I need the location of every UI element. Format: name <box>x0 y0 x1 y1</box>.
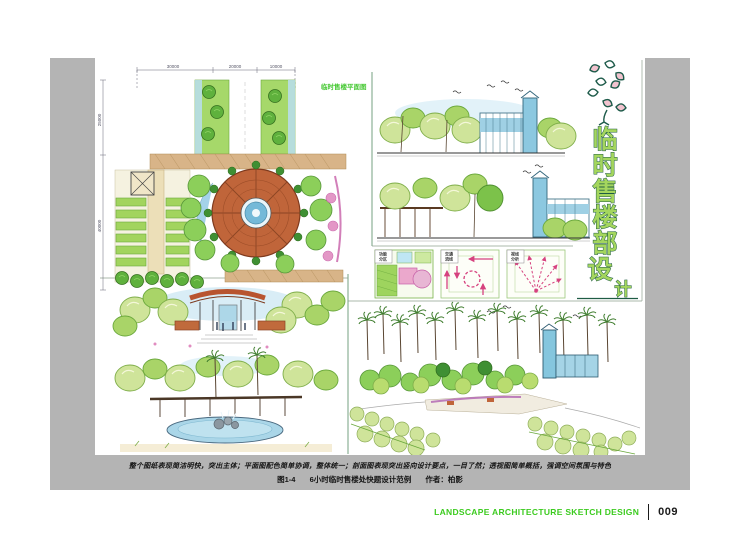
dim-top-2: 20000 <box>229 64 242 69</box>
plan-entry-drive <box>195 80 295 154</box>
elevation2-pergola <box>380 208 443 237</box>
circulation-diagram: 交通 流线 <box>441 250 499 298</box>
title-char-2: 时 <box>592 152 617 180</box>
figure-number: 图1-4 <box>277 475 295 484</box>
zoning-diagram: 功能 分区 <box>375 250 433 298</box>
title-char-7: 计 <box>615 279 632 299</box>
sightline-diagram: 视线 分析 <box>507 250 565 298</box>
page-number: 009 <box>658 506 678 518</box>
footer-divider <box>648 504 649 520</box>
figure-author: 作者：柏影 <box>425 475 463 484</box>
figure-caption: 图1-4 6小时临时售楼处快题设计范例 作者：柏影 <box>271 474 469 485</box>
entrance-perspective <box>113 287 345 349</box>
aerial-palms <box>358 302 616 362</box>
watercourt-pool <box>167 410 283 443</box>
aerial-perspective <box>350 302 640 455</box>
figure-title: 6小时临时售楼处快题设计范例 <box>310 475 412 484</box>
plan-title-label: 临时售楼平面图 <box>321 82 367 91</box>
watercourt-pergola <box>150 397 302 417</box>
elevation-drawing-2 <box>377 165 590 241</box>
dim-left-1: 25000 <box>97 113 102 126</box>
plant-sketch <box>588 60 627 125</box>
title-char-5: 部 <box>592 229 617 258</box>
title-char-6: 设 <box>587 256 612 284</box>
sketch-sheet: 30000 20000 10000 25000 40000 <box>95 58 645 455</box>
dim-top-1: 30000 <box>167 64 180 69</box>
title-char-1: 临 <box>592 125 617 154</box>
caption-band: 整个图纸表现简洁明快，突出主体；平面图配色简单协调，整体统一；剖面图表现突出竖向… <box>50 455 690 490</box>
aerial-tree-mass <box>360 361 538 394</box>
dim-top-3: 10000 <box>270 64 283 69</box>
zoning-label-2: 分区 <box>379 256 387 262</box>
plan-pavilion <box>131 172 154 195</box>
page-footer: LANDSCAPE ARCHITECTURE SKETCH DESIGN 009 <box>434 502 678 522</box>
caption-commentary: 整个图纸表现简洁明快，突出主体；平面图配色简单协调，整体统一；剖面图表现突出竖向… <box>129 461 611 471</box>
aerial-building <box>541 324 598 378</box>
aerial-plaza <box>353 394 640 428</box>
aerial-hedges-right <box>528 417 636 455</box>
dim-left-2: 40000 <box>97 219 102 232</box>
watercourt-perspective <box>115 347 338 452</box>
aerial-hedges-left <box>350 407 440 455</box>
circulation-label-2: 流线 <box>445 256 453 262</box>
sightline-label-2: 分析 <box>511 256 519 262</box>
elevation-drawing-1 <box>377 81 576 156</box>
page-content-panel: 30000 20000 10000 25000 40000 <box>50 58 690 490</box>
sketch-artwork: 30000 20000 10000 25000 40000 <box>95 58 645 455</box>
title-char-3: 售 <box>592 177 617 206</box>
title-char-4: 楼 <box>592 204 617 232</box>
title-column: 临 时 售 楼 部 设 计 <box>577 60 638 299</box>
analysis-diagrams: 功能 分区 <box>375 250 565 298</box>
site-plan-drawing: 30000 20000 10000 25000 40000 <box>97 64 367 290</box>
series-title: LANDSCAPE ARCHITECTURE SKETCH DESIGN <box>434 507 639 517</box>
